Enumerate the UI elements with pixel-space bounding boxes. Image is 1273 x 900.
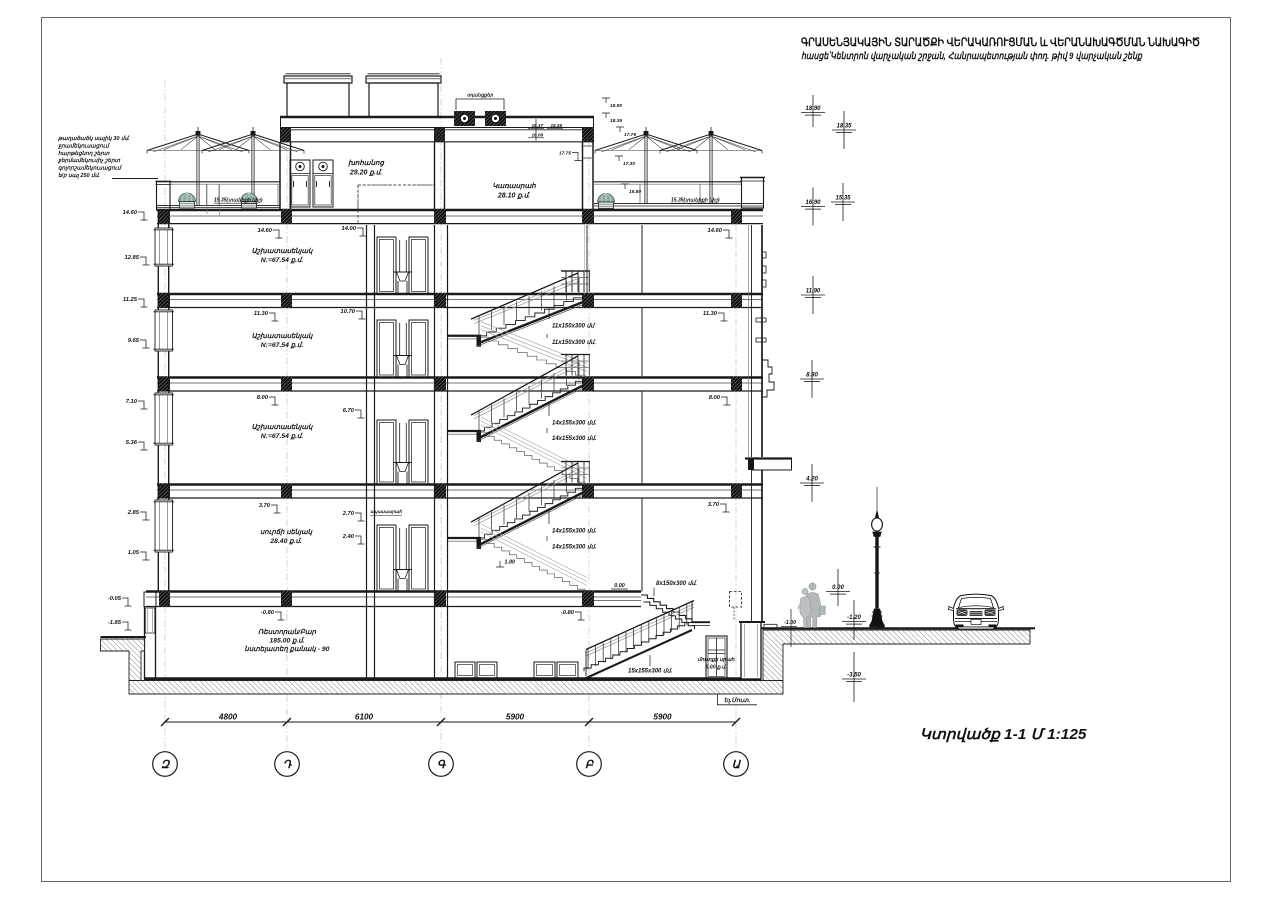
svg-text:14x155x300 մմ.: 14x155x300 մմ.	[552, 435, 597, 442]
svg-text:6.70: 6.70	[343, 408, 355, 414]
svg-text:18.08: 18.08	[532, 133, 544, 138]
svg-text:սուրճի սենյակ: սուրճի սենյակ	[260, 528, 313, 536]
svg-text:14x155x300 մմ.: 14x155x300 մմ.	[552, 528, 597, 535]
svg-text:Կառասրահ: Կառասրահ	[492, 182, 536, 190]
svg-text:նստելատեղ քանակ - 90: նստելատեղ քանակ - 90	[245, 645, 330, 653]
svg-text:5.36: 5.36	[126, 440, 138, 446]
svg-text:2.85: 2.85	[127, 510, 140, 516]
svg-text:N:=67.54 ք.մ.: N:=67.54 ք.մ.	[261, 341, 304, 349]
svg-text:-0.80: -0.80	[261, 610, 275, 616]
svg-text:11.30: 11.30	[254, 311, 269, 317]
svg-text:Ռեստորան/Բար: Ռեստորան/Բար	[258, 628, 317, 636]
svg-text:14x155x300 մմ.: 14x155x300 մմ.	[552, 544, 597, 551]
svg-text:15.35(տանիքի նիշ): 15.35(տանիքի նիշ)	[671, 198, 720, 204]
svg-text:15x155x300 մմ.: 15x155x300 մմ.	[628, 668, 673, 675]
svg-text:6100: 6100	[355, 713, 374, 722]
svg-text:14.60: 14.60	[257, 228, 272, 234]
svg-text:1.80: 1.80	[505, 560, 516, 566]
svg-text:հարթեցնող շերտ: հարթեցնող շերտ	[58, 150, 110, 157]
svg-text:11.25: 11.25	[123, 297, 138, 303]
svg-text:-1.85: -1.85	[108, 620, 122, 626]
svg-text:թաղածածկ սալիկ 30 մմ.: թաղածածկ սալիկ 30 մմ.	[58, 135, 130, 142]
svg-text:մուտքի սրահ: մուտքի սրահ	[698, 656, 736, 663]
svg-text:17.79: 17.79	[624, 132, 636, 138]
svg-text:28.40 ք.մ.: 28.40 ք.մ.	[269, 537, 301, 545]
svg-text:15.80: 15.80	[629, 189, 641, 195]
svg-text:8x150x300 մմ.: 8x150x300 մմ.	[656, 580, 698, 587]
svg-text:17.75: 17.75	[559, 151, 571, 157]
svg-text:N:=67.54 ք.մ.: N:=67.54 ք.մ.	[261, 432, 304, 440]
svg-text:18.35: 18.35	[610, 118, 622, 124]
svg-text:12.85: 12.85	[124, 255, 139, 261]
svg-text:5900: 5900	[653, 713, 672, 722]
svg-text:2.40: 2.40	[342, 534, 355, 540]
svg-text:18.37: 18.37	[532, 123, 544, 128]
svg-text:14.60: 14.60	[122, 210, 137, 216]
svg-text:7.10: 7.10	[126, 399, 138, 405]
svg-text:8.00: 8.00	[257, 395, 269, 401]
svg-text:Ել.Մուտ.: Ել.Մուտ.	[724, 697, 751, 704]
svg-text:17.30: 17.30	[623, 161, 635, 167]
svg-text:9.65: 9.65	[128, 338, 140, 344]
svg-text:18.35: 18.35	[551, 123, 563, 128]
svg-text:Աշխատասենյակ: Աշխատասենյակ	[252, 332, 314, 340]
svg-text:Աշխատասենյակ: Աշխատասենյակ	[252, 247, 314, 255]
svg-text:-1.00: -1.00	[784, 620, 796, 626]
svg-text:15.35(տանիքի նիշ): 15.35(տանիքի նիշ)	[214, 198, 263, 204]
svg-text:2.70: 2.70	[342, 511, 355, 517]
svg-text:11.30: 11.30	[703, 311, 718, 317]
svg-text:Աշխատասենյակ: Աշխատասենյակ	[252, 423, 314, 431]
svg-text:29.20 ք.մ.: 29.20 ք.մ.	[349, 169, 383, 177]
svg-text:5900: 5900	[506, 713, 525, 722]
svg-text:11x150x300 մմ: 11x150x300 մմ	[552, 323, 596, 330]
svg-text:185.00 ք.մ.: 185.00 ք.մ.	[269, 637, 304, 645]
svg-text:Կտրվածք 1-1 Մ 1:125: Կտրվածք 1-1 Մ 1:125	[920, 727, 1088, 743]
svg-text:ջերմամեկուսիչ շերտ: ջերմամեկուսիչ շերտ	[58, 157, 121, 164]
svg-text:28.10 ք.մ.: 28.10 ք.մ.	[497, 192, 531, 200]
svg-text:խոհանոց: խոհանոց	[348, 159, 384, 167]
svg-text:3.70: 3.70	[259, 503, 271, 509]
svg-text:գոլորշամեկուսացում: գոլորշամեկուսացում	[58, 165, 122, 172]
svg-text:ԳՐԱՍԵՆՅԱԿԱՅԻՆ ՏԱՐԱԾՔԻ ՎԵՐԱԿԱՌՈ: ԳՐԱՍԵՆՅԱԿԱՅԻՆ ՏԱՐԱԾՔԻ ՎԵՐԱԿԱՌՈՒՑՄԱՆ և ՎԵ…	[801, 37, 1200, 49]
svg-text:օդանցքեր: օդանցքեր	[467, 93, 494, 99]
svg-text:0.00: 0.00	[614, 583, 625, 589]
svg-text:6.00 ք.մ.: 6.00 ք.մ.	[705, 664, 726, 671]
svg-text:4800: 4800	[218, 713, 238, 722]
svg-text:14.00: 14.00	[341, 226, 356, 232]
svg-text:ե/բ սալ 250 մմ.: ե/բ սալ 250 մմ.	[58, 172, 100, 179]
svg-text:14x155x300 մմ.: 14x155x300 մմ.	[552, 420, 597, 427]
svg-text:3.70: 3.70	[708, 502, 720, 508]
svg-text:14.60: 14.60	[707, 228, 722, 234]
svg-text:10.70: 10.70	[340, 309, 355, 315]
svg-text:Բ: Բ	[585, 759, 594, 771]
svg-text:11x150x300 մմ.: 11x150x300 մմ.	[552, 339, 596, 346]
svg-text:-0.05: -0.05	[108, 596, 122, 602]
svg-text:-0.80: -0.80	[561, 610, 575, 616]
svg-text:ջրամեկուսացում: ջրամեկուսացում	[58, 142, 110, 149]
svg-text:8.00: 8.00	[709, 395, 721, 401]
svg-text:18.90: 18.90	[610, 103, 622, 109]
svg-text:հասցե՝Կենտրոն վարչական շրջան,: հասցե՝Կենտրոն վարչական շրջան, Հանրապետու…	[801, 51, 1143, 62]
svg-text:N:=67.54 ք.մ.: N:=67.54 ք.մ.	[261, 256, 304, 264]
svg-text:1.05: 1.05	[128, 550, 140, 556]
